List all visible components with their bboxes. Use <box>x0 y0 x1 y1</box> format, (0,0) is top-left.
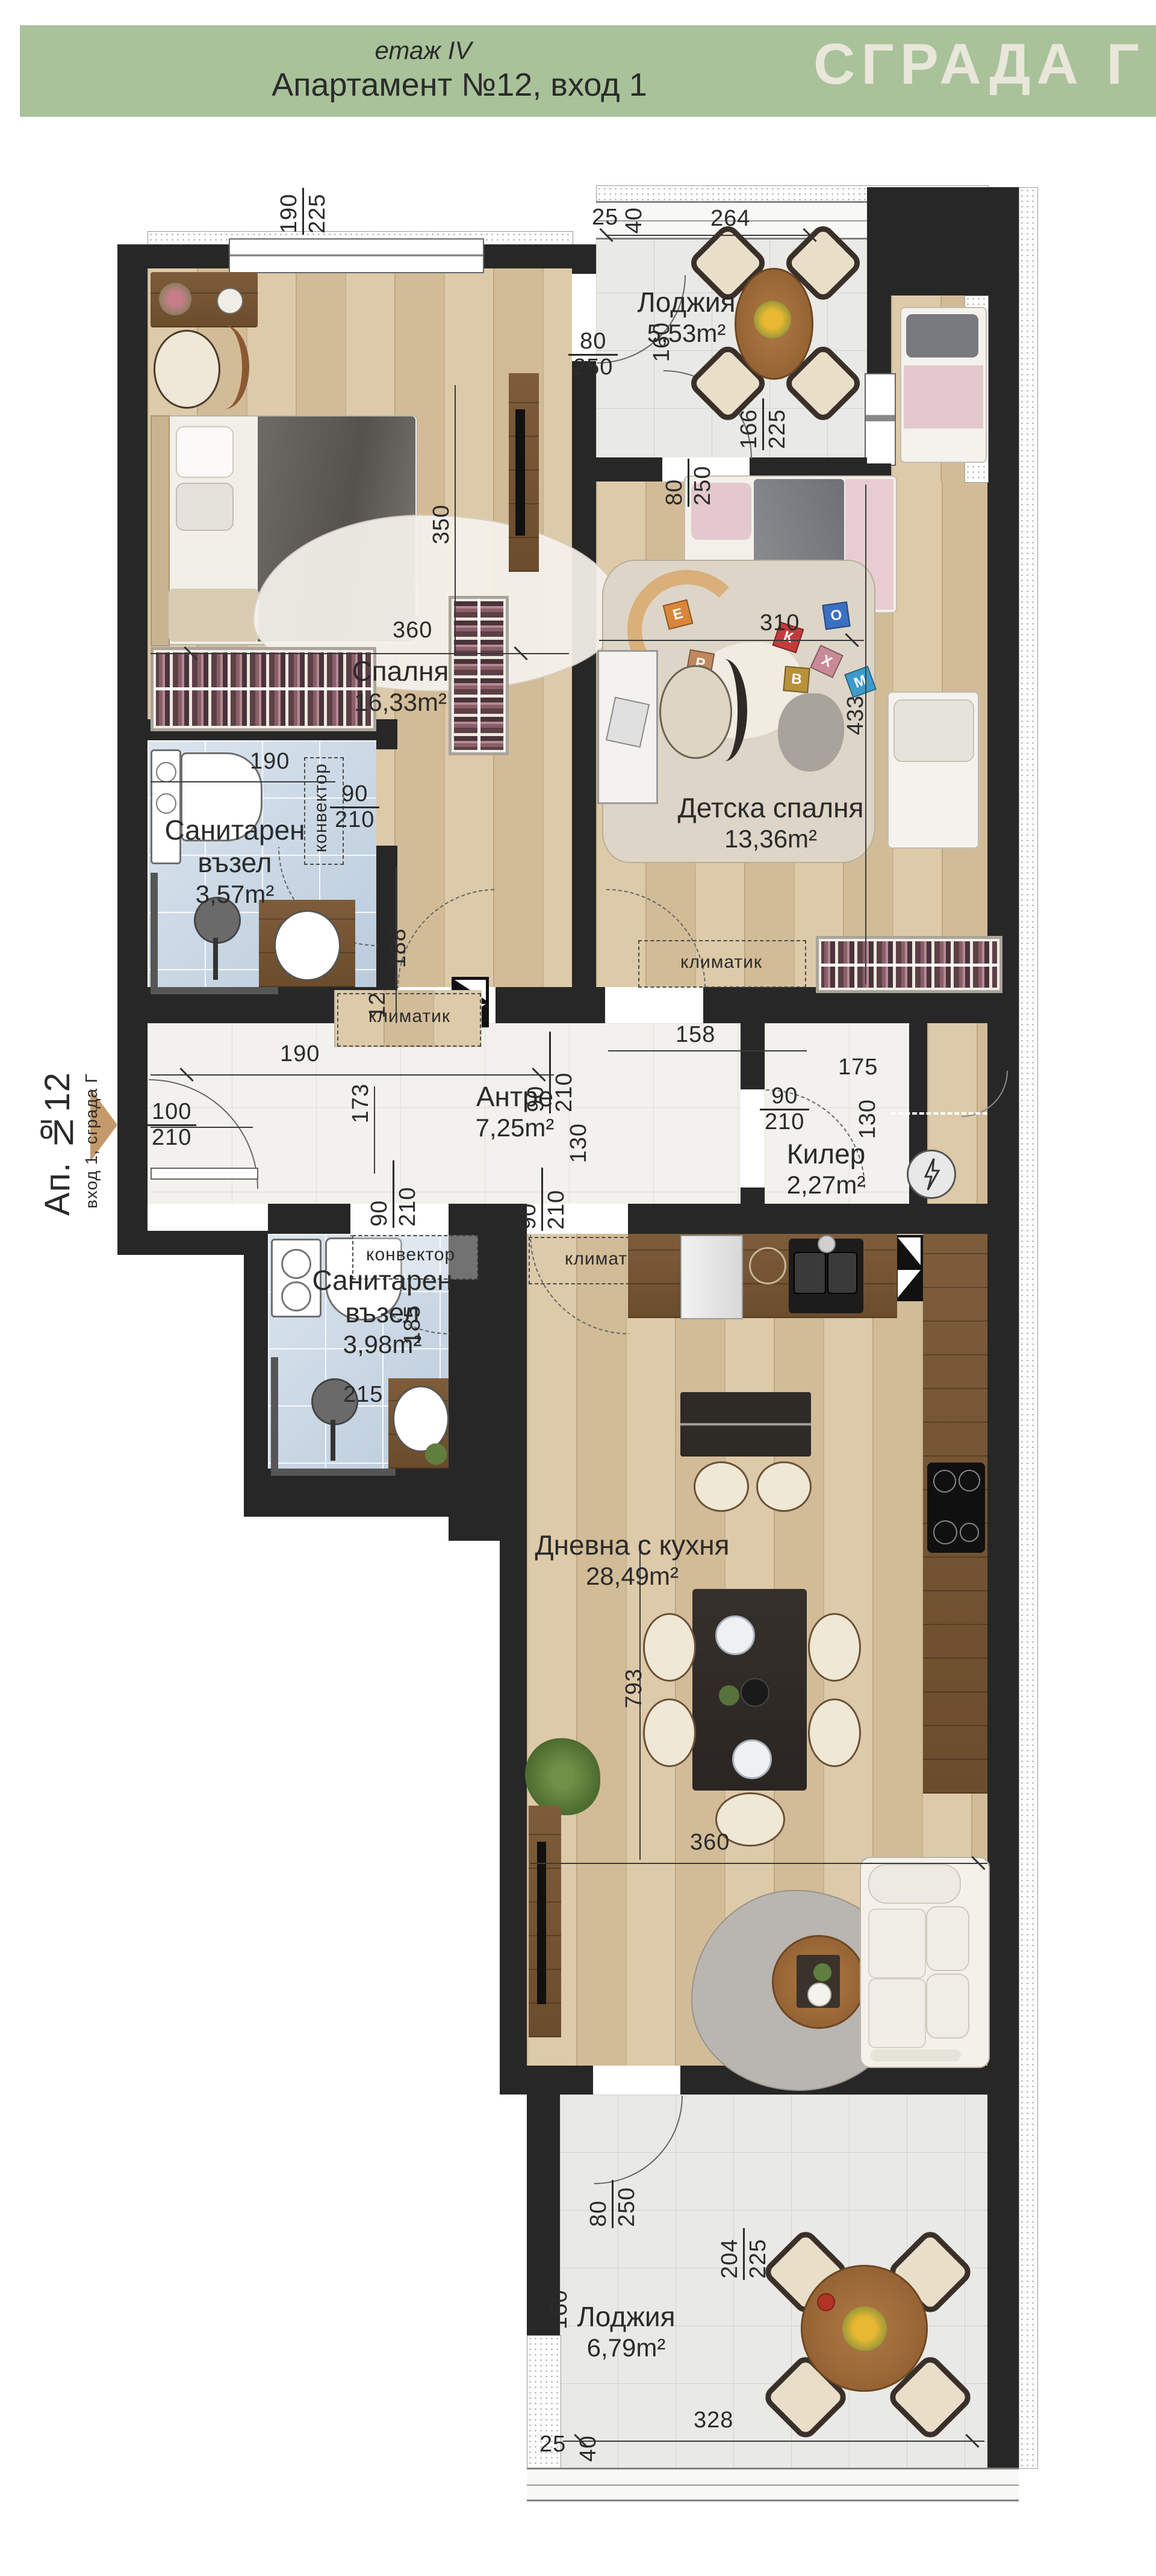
dim-value: 190 <box>276 188 302 235</box>
dim-bath2-215: 215 <box>343 1382 383 1408</box>
dim-bath2-door: 90210 <box>366 1160 421 1228</box>
kitchen-cooktop <box>927 1463 985 1553</box>
wall-bath1-right-1 <box>376 719 397 749</box>
bed-pillow <box>176 426 234 478</box>
header-title: Апартамент №12, вход 1 <box>249 66 670 104</box>
bath2-shower <box>271 1357 396 1476</box>
room-label-bath2: Санитарен възел 3,98m² <box>298 1264 467 1359</box>
entrance-door-leaf <box>151 1168 258 1180</box>
dim-line <box>599 640 864 641</box>
burner <box>960 1523 979 1542</box>
shaft-triangle <box>898 1237 921 1265</box>
toy-block-letter: О <box>830 607 843 625</box>
kitchen-fridge <box>680 1235 743 1319</box>
wall-bath2-bottom <box>244 1469 527 1517</box>
bedroom-window <box>229 238 484 273</box>
sink-bowl <box>794 1252 826 1294</box>
bath2-sink <box>393 1386 449 1452</box>
dim-value: 100 <box>149 1100 194 1124</box>
dim-living-793: 793 <box>621 1668 647 1708</box>
dim-loggia-264: 264 <box>710 206 750 232</box>
dim-line <box>605 235 810 236</box>
climatic-label-kids: климатик <box>680 952 762 973</box>
dim-loggiab-25: 25 <box>539 2432 566 2457</box>
wall-closet-left-2 <box>741 1187 765 1204</box>
header-floor: етаж IV <box>333 36 514 65</box>
dim-loggiab-328: 328 <box>694 2407 733 2433</box>
dim-bedroom-350: 350 <box>429 504 455 544</box>
dim-kids-window: 166225 <box>736 398 791 450</box>
dining-table <box>692 1589 807 1791</box>
kids-daybed <box>900 307 987 463</box>
shower-stand <box>213 938 218 980</box>
bath2-plant <box>425 1443 447 1465</box>
dim-value: 80 <box>661 459 688 507</box>
kitchen-island <box>680 1392 811 1457</box>
dim-value: 250 <box>614 2180 640 2228</box>
dim-loggia-40: 40 <box>621 207 647 234</box>
kids-pillow-big <box>893 699 974 762</box>
dim-closet-175: 175 <box>838 1054 878 1080</box>
dim-value: 90 <box>366 1160 393 1228</box>
room-area: 28,49m² <box>530 1561 735 1591</box>
plate <box>715 1615 755 1655</box>
dim-hall-158: 158 <box>676 1022 715 1048</box>
wall-loggiab-top-1 <box>500 2066 593 2095</box>
dim-bath1-12: 12 <box>365 992 391 1018</box>
dining-chair <box>808 1613 861 1682</box>
dim-living-door: 90210 <box>515 1168 570 1231</box>
dim-closet-door: 90210 <box>762 1085 807 1135</box>
dim-value: 225 <box>304 188 331 235</box>
dim-kids-loggia-door: 80250 <box>661 459 716 507</box>
dim-loggiab-window: 204225 <box>716 2228 771 2280</box>
dim-loggia-25: 25 <box>592 205 618 231</box>
room-name: Детска спалня <box>656 791 885 824</box>
burner <box>933 1520 957 1544</box>
burner <box>959 1470 980 1491</box>
sofa-arm-pillow <box>868 1864 961 1904</box>
room-area: 5,53m² <box>608 318 765 348</box>
room-area: 7,25m² <box>446 1113 584 1143</box>
dim-line <box>530 1863 987 1864</box>
room-label-hall: Антре 7,25m² <box>446 1080 584 1143</box>
entrance-line-label: вход 1, сграда Г <box>82 1052 101 1209</box>
dining-chair <box>643 1613 696 1682</box>
wall-bedroom-loggia-1 <box>572 244 596 274</box>
dim-bath1-190: 190 <box>250 749 290 775</box>
dim-closet-130: 130 <box>855 1099 881 1139</box>
kids-chair-back <box>701 659 747 761</box>
sofa-arm-pillow <box>871 2049 961 2061</box>
room-name: Антре <box>446 1080 584 1113</box>
dim-kids-433: 433 <box>843 695 869 735</box>
parapet-loggia-bottom <box>527 2468 1019 2501</box>
dim-line <box>608 1050 807 1051</box>
room-name: Лоджия <box>548 2300 704 2333</box>
header-banner: етаж IV Апартамент №12, вход 1 СГРАДА Г <box>20 25 1156 117</box>
sink-bowl <box>827 1252 857 1294</box>
dim-value: 225 <box>764 398 791 450</box>
toy-block-letter: Е <box>671 605 685 624</box>
sofa-back-cushion <box>926 1906 969 1971</box>
toy-block: О <box>822 601 850 630</box>
bed-throw <box>169 589 259 642</box>
dim-value: 166 <box>736 398 762 450</box>
dim-living-360: 360 <box>690 1830 730 1856</box>
dim-value: 210 <box>332 808 377 832</box>
plate <box>732 1739 772 1779</box>
room-label-loggia-bottom: Лоджия 6,79m² <box>548 2300 704 2363</box>
daybed-pillow <box>906 314 978 358</box>
coffee-table-vase <box>807 1983 831 2007</box>
dim-value: 210 <box>149 1126 194 1150</box>
room-name: Дневна с кухня <box>530 1529 735 1561</box>
wall-loggia-right-1 <box>867 296 891 373</box>
dim-line <box>151 1074 554 1076</box>
room-label-living: Дневна с кухня 28,49m² <box>530 1529 735 1591</box>
room-area: 2,27m² <box>766 1170 886 1200</box>
kids-laptop <box>606 697 650 748</box>
cabinet-sink <box>156 762 176 782</box>
room-name: Спалня <box>313 655 488 687</box>
bed-headboard <box>151 415 170 646</box>
wall-living-left <box>500 1541 527 2066</box>
dim-entrance-door: 100210 <box>149 1100 194 1150</box>
dim-kids-310: 310 <box>760 610 800 636</box>
flower-pot <box>159 283 191 315</box>
electric-panel <box>907 1150 956 1199</box>
toy-block-letter: Х <box>819 652 834 671</box>
kids-wardrobe <box>816 936 1002 993</box>
table-plant <box>719 1685 739 1706</box>
dim-bedroom-window: 190225 <box>276 188 331 235</box>
room-name: Лоджия <box>608 286 765 318</box>
wall-left <box>117 244 148 1255</box>
building-badge: СГРАДА Г <box>813 31 1145 98</box>
shower-stand <box>331 1420 335 1461</box>
daybed-blanket <box>904 365 983 429</box>
dim-value: 250 <box>571 356 615 380</box>
bed-pillow <box>176 483 234 531</box>
dim-value: 80 <box>577 330 609 354</box>
dim-line <box>151 781 335 782</box>
room-area: 3,57m² <box>148 879 322 909</box>
room-name: Килер <box>766 1138 886 1170</box>
dim-value: 225 <box>745 2228 771 2280</box>
dim-bedroom-360: 360 <box>393 618 432 643</box>
room-name: Санитарен <box>298 1264 467 1296</box>
wall-closet-left-1 <box>741 1023 765 1089</box>
kids-alcove-window <box>865 373 896 466</box>
loggia-bottom-table <box>801 2265 928 2392</box>
dim-hall-190: 190 <box>280 1041 320 1067</box>
dim-value: 90 <box>339 782 370 807</box>
dim-bath1-188: 188 <box>385 928 411 968</box>
dim-loggiab-door: 80250 <box>585 2180 640 2228</box>
living-tv <box>537 1842 546 2004</box>
island-stool <box>694 1461 749 1512</box>
dim-line <box>151 653 569 654</box>
dim-value: 210 <box>394 1160 421 1228</box>
sofa-back-cushion <box>926 1974 969 2039</box>
dim-loggiab-40: 40 <box>576 2435 601 2462</box>
burner <box>933 1470 956 1493</box>
dim-value: 90 <box>769 1085 800 1109</box>
sink-faucet <box>818 1235 836 1253</box>
room-label-bedroom: Спалня 16,33m² <box>313 655 488 717</box>
kids-desk <box>597 650 658 804</box>
wall-hall-top-2 <box>496 987 605 1023</box>
dim-value: 90 <box>515 1168 541 1231</box>
shaft-triangle <box>898 1270 921 1298</box>
dining-chair <box>643 1698 696 1767</box>
room-name: възел <box>298 1296 467 1329</box>
room-area: 13,36m² <box>656 824 885 854</box>
room-label-closet: Килер 2,27m² <box>766 1138 886 1200</box>
bedroom-dresser <box>151 272 258 327</box>
dim-value: 250 <box>689 459 716 507</box>
dining-chair <box>808 1698 861 1767</box>
entrance-apartment-label: Ап. №12 <box>37 1047 78 1216</box>
dim-hall-173: 173 <box>348 1083 374 1123</box>
table-bowl <box>741 1678 769 1707</box>
coffee-table-leaves <box>813 1963 831 1981</box>
living-sofa <box>860 1857 990 2068</box>
wall-living-top <box>628 1204 987 1234</box>
dim-line <box>455 385 456 653</box>
bath1-sink <box>274 910 341 981</box>
sofa-seat-cushion <box>868 1978 926 2048</box>
room-label-kids: Детска спалня 13,36m² <box>656 791 885 854</box>
room-label-loggia-top: Лоджия 5,53m² <box>608 286 765 348</box>
wall-closet-right <box>909 1023 927 1234</box>
room-name: Санитарен <box>148 814 322 846</box>
toy-block-letter: В <box>791 670 803 688</box>
toy-block: В <box>783 666 810 693</box>
rug-spot <box>778 693 844 772</box>
kids-bed-right <box>887 692 979 849</box>
bedroom-tv <box>515 409 525 536</box>
room-area: 16,33m² <box>313 687 488 717</box>
strip-dashed-line <box>891 1112 987 1115</box>
wall-kids-loggia-1 <box>596 457 662 481</box>
dim-value: 210 <box>543 1168 570 1231</box>
kitchen-sink-unit <box>789 1239 863 1313</box>
bedroom-chair-back <box>199 325 249 409</box>
coffee-cup <box>817 2293 835 2311</box>
wall-bath2-top <box>268 1204 350 1234</box>
room-area: 6,79m² <box>548 2333 704 2363</box>
wall-right <box>987 187 1019 2468</box>
room-area: 3,98m² <box>298 1330 467 1360</box>
kitchen-deco-ring <box>749 1247 786 1284</box>
flower-bouquet <box>842 2306 887 2351</box>
dim-line <box>563 2441 984 2442</box>
sofa-seat-cushion <box>868 1909 926 1978</box>
wall-bedroom-kids <box>572 361 596 987</box>
dim-value: 210 <box>762 1110 807 1135</box>
room-label-bath1: Санитарен възел 3,57m² <box>148 814 322 909</box>
dim-bath1-door: 90210 <box>332 782 377 832</box>
dim-value: 80 <box>585 2180 612 2228</box>
bath2-convector-label: конвектор <box>366 1245 455 1265</box>
shaft-symbol-kitchen <box>895 1235 923 1301</box>
cabinet-sink <box>156 793 176 814</box>
island-stool <box>756 1461 812 1512</box>
insulation-right <box>1019 187 1038 2469</box>
room-name: възел <box>148 846 322 879</box>
lamp <box>217 288 243 314</box>
dim-value: 204 <box>716 2228 743 2280</box>
coffee-table <box>772 1935 866 2029</box>
